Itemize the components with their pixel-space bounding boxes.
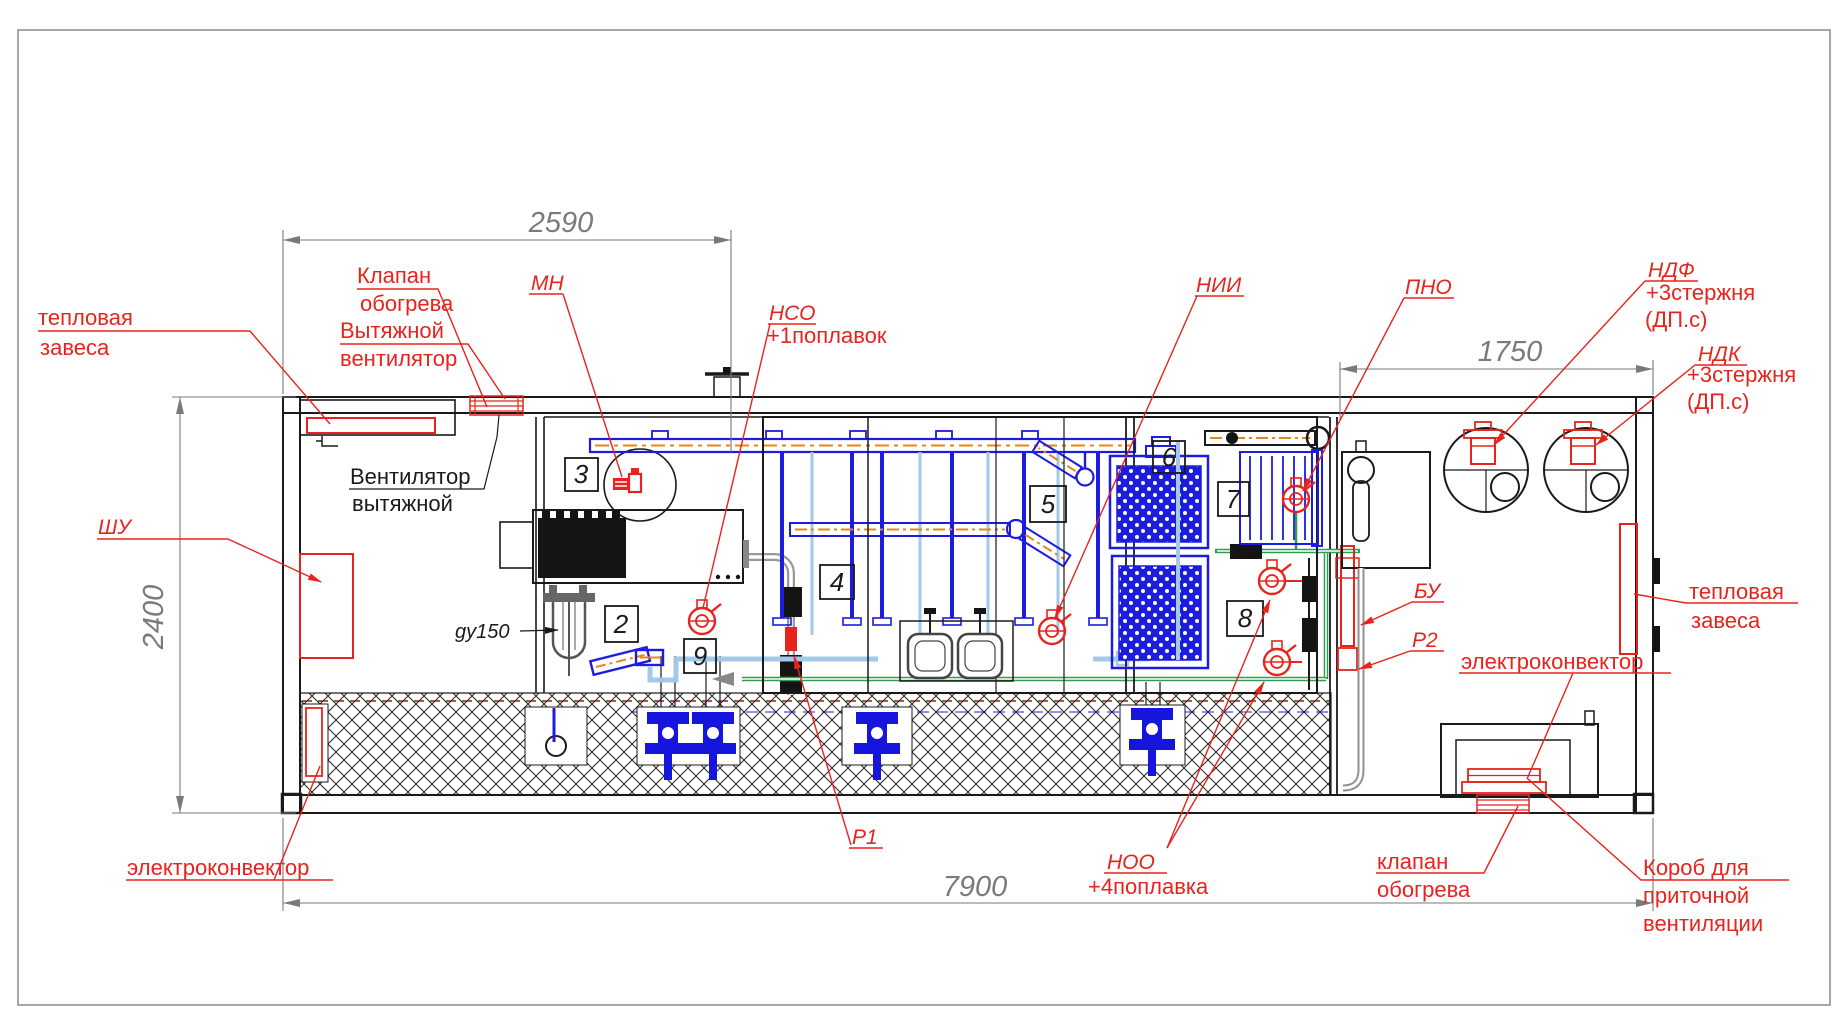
door-hinge xyxy=(1653,626,1660,652)
box-9: 9 xyxy=(693,641,707,671)
label-gy150: gy150 xyxy=(455,621,510,643)
box-2: 2 xyxy=(613,609,629,639)
dosing-tank-2 xyxy=(1544,428,1628,512)
label-exhaust-fan-black-2: вытяжной xyxy=(352,491,453,516)
bu-device xyxy=(1336,546,1359,670)
left-wall xyxy=(283,397,300,813)
label-heat-curtain-left-2: завеса xyxy=(40,335,110,360)
blower-unit xyxy=(538,518,626,578)
entry-area xyxy=(300,400,455,658)
label-bu: БУ xyxy=(1414,580,1442,603)
box-6: 6 xyxy=(1162,442,1177,472)
label-exhaust-fan-red-2: вентилятор xyxy=(340,346,457,371)
label-noo: НОО xyxy=(1107,851,1155,874)
roof-elements xyxy=(470,367,749,415)
label-exhaust-fan-black-1: Вентилятор xyxy=(350,464,470,489)
label-electroconvector-right: электроконвектор xyxy=(1461,649,1643,674)
mn-pump-icon xyxy=(613,468,641,492)
label-noo-note: +4поплавка xyxy=(1088,874,1209,899)
light-blue-drops xyxy=(812,452,1058,635)
label-nso-note: +1поплавок xyxy=(767,323,887,348)
nso-valve-icon xyxy=(689,600,721,634)
label-r2: Р2 xyxy=(1412,629,1438,652)
label-heating-valve-bottom-1: клапан xyxy=(1377,849,1448,874)
label-heating-valve-bottom-2: обогрева xyxy=(1377,877,1471,902)
label-r1: Р1 xyxy=(852,826,878,849)
dim-2400: 2400 xyxy=(138,585,170,651)
label-exhaust-fan-red-1: Вытяжной xyxy=(340,318,444,343)
box-8: 8 xyxy=(1238,603,1253,633)
roof-vent-stack xyxy=(714,377,740,397)
label-shu: ШУ xyxy=(98,516,133,539)
label-ndf-note2: (ДП.с) xyxy=(1645,307,1707,332)
label-ndk-note1: +3стержня xyxy=(1687,362,1796,387)
label-heat-curtain-right-2: завеса xyxy=(1691,608,1761,633)
p1-valve xyxy=(785,627,797,651)
box-7: 7 xyxy=(1226,484,1242,514)
control-cabinet-shu xyxy=(300,554,353,658)
dosing-tank-1 xyxy=(1444,428,1528,512)
box-3: 3 xyxy=(574,459,589,489)
label-ndk-note2: (ДП.с) xyxy=(1687,389,1749,414)
door-hinge xyxy=(1653,558,1660,584)
label-nii: НИИ xyxy=(1196,274,1242,297)
transfer-pipe xyxy=(590,647,650,675)
box-4: 4 xyxy=(830,567,844,597)
dim-2590: 2590 xyxy=(528,207,594,239)
label-supply-vent-2: приточной xyxy=(1643,883,1749,908)
label-ndf-note1: +3стержня xyxy=(1646,280,1755,305)
label-supply-vent-1: Короб для xyxy=(1643,855,1749,880)
noo-valve-icon xyxy=(1259,560,1291,594)
nii-valve-icon xyxy=(1039,610,1071,644)
pno-valve-icon xyxy=(1283,478,1315,512)
label-heat-curtain-left-1: тепловая xyxy=(38,305,133,330)
flow-arrow xyxy=(712,672,734,686)
drawing-page: 3 2 9 4 5 6 7 8 2590 1750 2400 7900 тепл… xyxy=(0,0,1847,1035)
box-5: 5 xyxy=(1041,489,1056,519)
label-heat-curtain-right-1: тепловая xyxy=(1689,579,1784,604)
vestibule xyxy=(1342,422,1637,813)
noo-valve-icon xyxy=(1264,641,1296,675)
supply-vent-box xyxy=(1441,711,1598,813)
label-mn: МН xyxy=(531,272,564,295)
dim-7900: 7900 xyxy=(943,871,1008,903)
heat-curtain-right-unit xyxy=(1620,524,1637,654)
right-wall xyxy=(1636,397,1653,813)
dim-1750: 1750 xyxy=(1478,336,1543,368)
label-supply-vent-3: вентиляции xyxy=(1643,911,1763,936)
label-pno: ПНО xyxy=(1405,276,1452,299)
label-ndf: НДФ xyxy=(1648,259,1695,282)
label-nso: НСО xyxy=(769,302,815,325)
label-heating-valve-top-1: Клапан xyxy=(357,263,431,288)
container-elevation-drawing: 3 2 9 4 5 6 7 8 2590 1750 2400 7900 тепл… xyxy=(0,0,1847,1035)
